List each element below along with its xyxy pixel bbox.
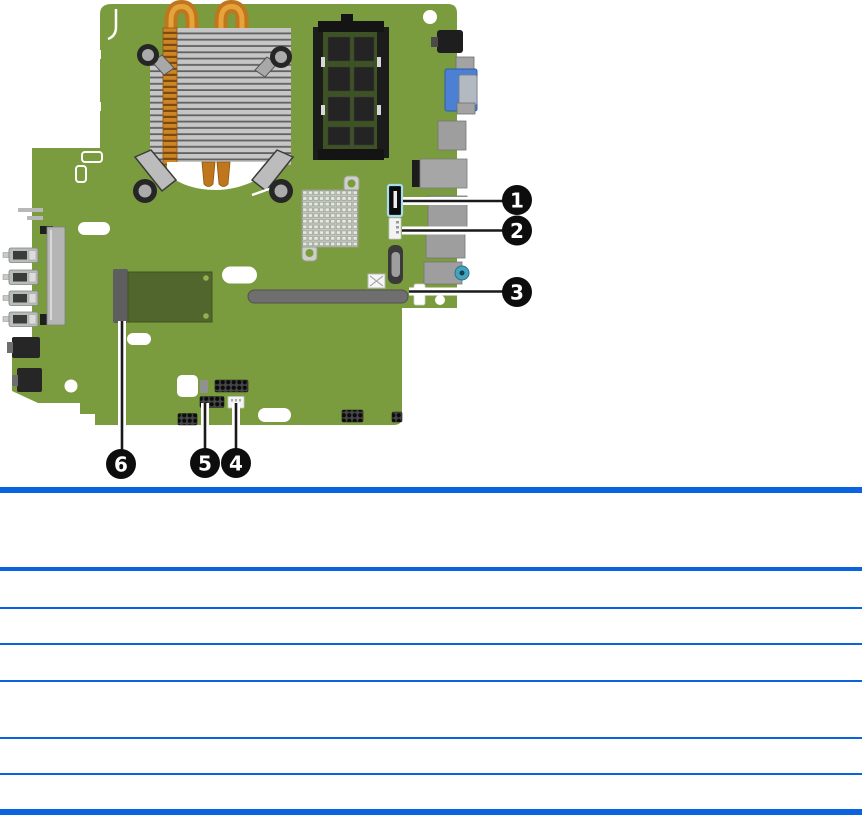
table-row: [0, 645, 862, 680]
table-header-rule: [0, 567, 862, 571]
table-row: [0, 775, 862, 809]
table-row: [0, 682, 862, 737]
manual-page: 1 2 3 4 5 6: [0, 0, 862, 816]
table-row: [0, 572, 862, 607]
table-header-row: [0, 493, 862, 567]
spec-table: [0, 0, 862, 816]
table-bottom-rule: [0, 809, 862, 815]
table-row: [0, 739, 862, 773]
table-row: [0, 609, 862, 643]
